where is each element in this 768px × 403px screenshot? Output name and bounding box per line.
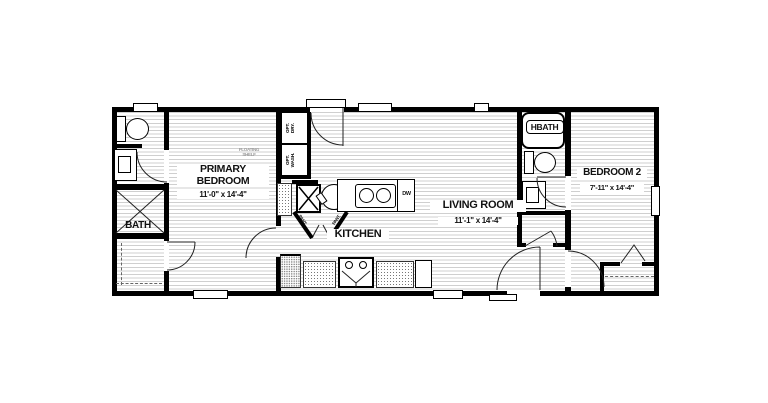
- hbath-sink: [526, 187, 539, 203]
- wall-hallcloset-top: [517, 211, 571, 215]
- wall-b2closet-top-right: [642, 262, 656, 266]
- wall-b2closet-left: [600, 262, 604, 295]
- hbath-label-chip: HBATH: [526, 120, 564, 134]
- optional-washer: OPT. WASH.: [281, 144, 308, 176]
- closet-rod-horizontal: [116, 283, 162, 284]
- opt-dry-label-line1: OPT.: [285, 123, 290, 133]
- kitchen-cabinet-end: [415, 260, 432, 288]
- opt-wash-label-line1: OPT.: [285, 155, 290, 165]
- sink-bowl-left: [359, 188, 374, 203]
- opt-dry-label-line2: DRY.: [290, 123, 295, 133]
- floorplan-canvas: OPT. DRY. OPT. WASH. DW HBATH: [0, 0, 768, 403]
- bedroom2-dims: 7'-11" x 14'-4": [580, 184, 644, 192]
- wall-shower-closet: [112, 235, 168, 239]
- kitchen-cabinet-1: [280, 254, 301, 288]
- bath-door-opening: [164, 150, 169, 183]
- bedroom2-closet-rod: [605, 276, 654, 277]
- kitchen-counter-3: [376, 261, 414, 288]
- front-door-threshold: [489, 294, 517, 301]
- kitchen-counter-2: [303, 261, 336, 288]
- bath-sink: [118, 156, 131, 173]
- hbath-door-opening: [565, 176, 571, 210]
- primary-bedroom-label-line2: BEDROOM: [177, 176, 269, 187]
- window-top-2: [358, 103, 392, 112]
- bath-label: BATH: [117, 221, 159, 232]
- wall-hallcloset-bottom-left: [517, 243, 526, 247]
- opt-wash-label-line2: WASH.: [290, 153, 295, 168]
- kitchen-label: KITCHEN: [327, 229, 389, 241]
- living-room-dims: 11'-1" x 14'-4": [438, 217, 518, 225]
- back-door-threshold: [306, 99, 346, 108]
- wall-hallcloset-bottom-right: [553, 243, 571, 247]
- window-top-3: [474, 103, 489, 112]
- kitchen-counter-left: [277, 183, 292, 216]
- primary-bedroom-dims: 11'-0" x 14'-4": [177, 191, 269, 199]
- window-top-1: [133, 103, 158, 112]
- bedroom2-door-opening: [565, 250, 571, 287]
- primary-bedroom-label-line1: PRIMARY: [177, 164, 269, 175]
- range-burner-left: [345, 261, 353, 269]
- closet-door-opening: [164, 241, 169, 271]
- bedroom2-label: BEDROOM 2: [577, 168, 647, 179]
- range-burner-right: [359, 261, 367, 269]
- hbath-toilet-bowl: [534, 152, 556, 173]
- optional-dryer: OPT. DRY.: [281, 112, 308, 144]
- window-bottom-1: [193, 290, 228, 299]
- toilet-bowl: [126, 118, 149, 140]
- window-bottom-2: [433, 290, 463, 299]
- dishwasher-label: DW: [398, 192, 415, 198]
- wall-bath-stub: [112, 144, 142, 148]
- closet-rod-vertical: [121, 243, 122, 285]
- floating-shelf-label-line2: SHELF: [242, 152, 255, 157]
- hbath-toilet-tank: [524, 151, 534, 174]
- window-right: [651, 186, 660, 216]
- toilet-tank: [116, 116, 126, 142]
- hbath-label: HBATH: [527, 123, 562, 132]
- range: [338, 257, 374, 288]
- sink-bowl-right: [376, 188, 391, 203]
- living-room-label: LIVING ROOM: [430, 200, 526, 212]
